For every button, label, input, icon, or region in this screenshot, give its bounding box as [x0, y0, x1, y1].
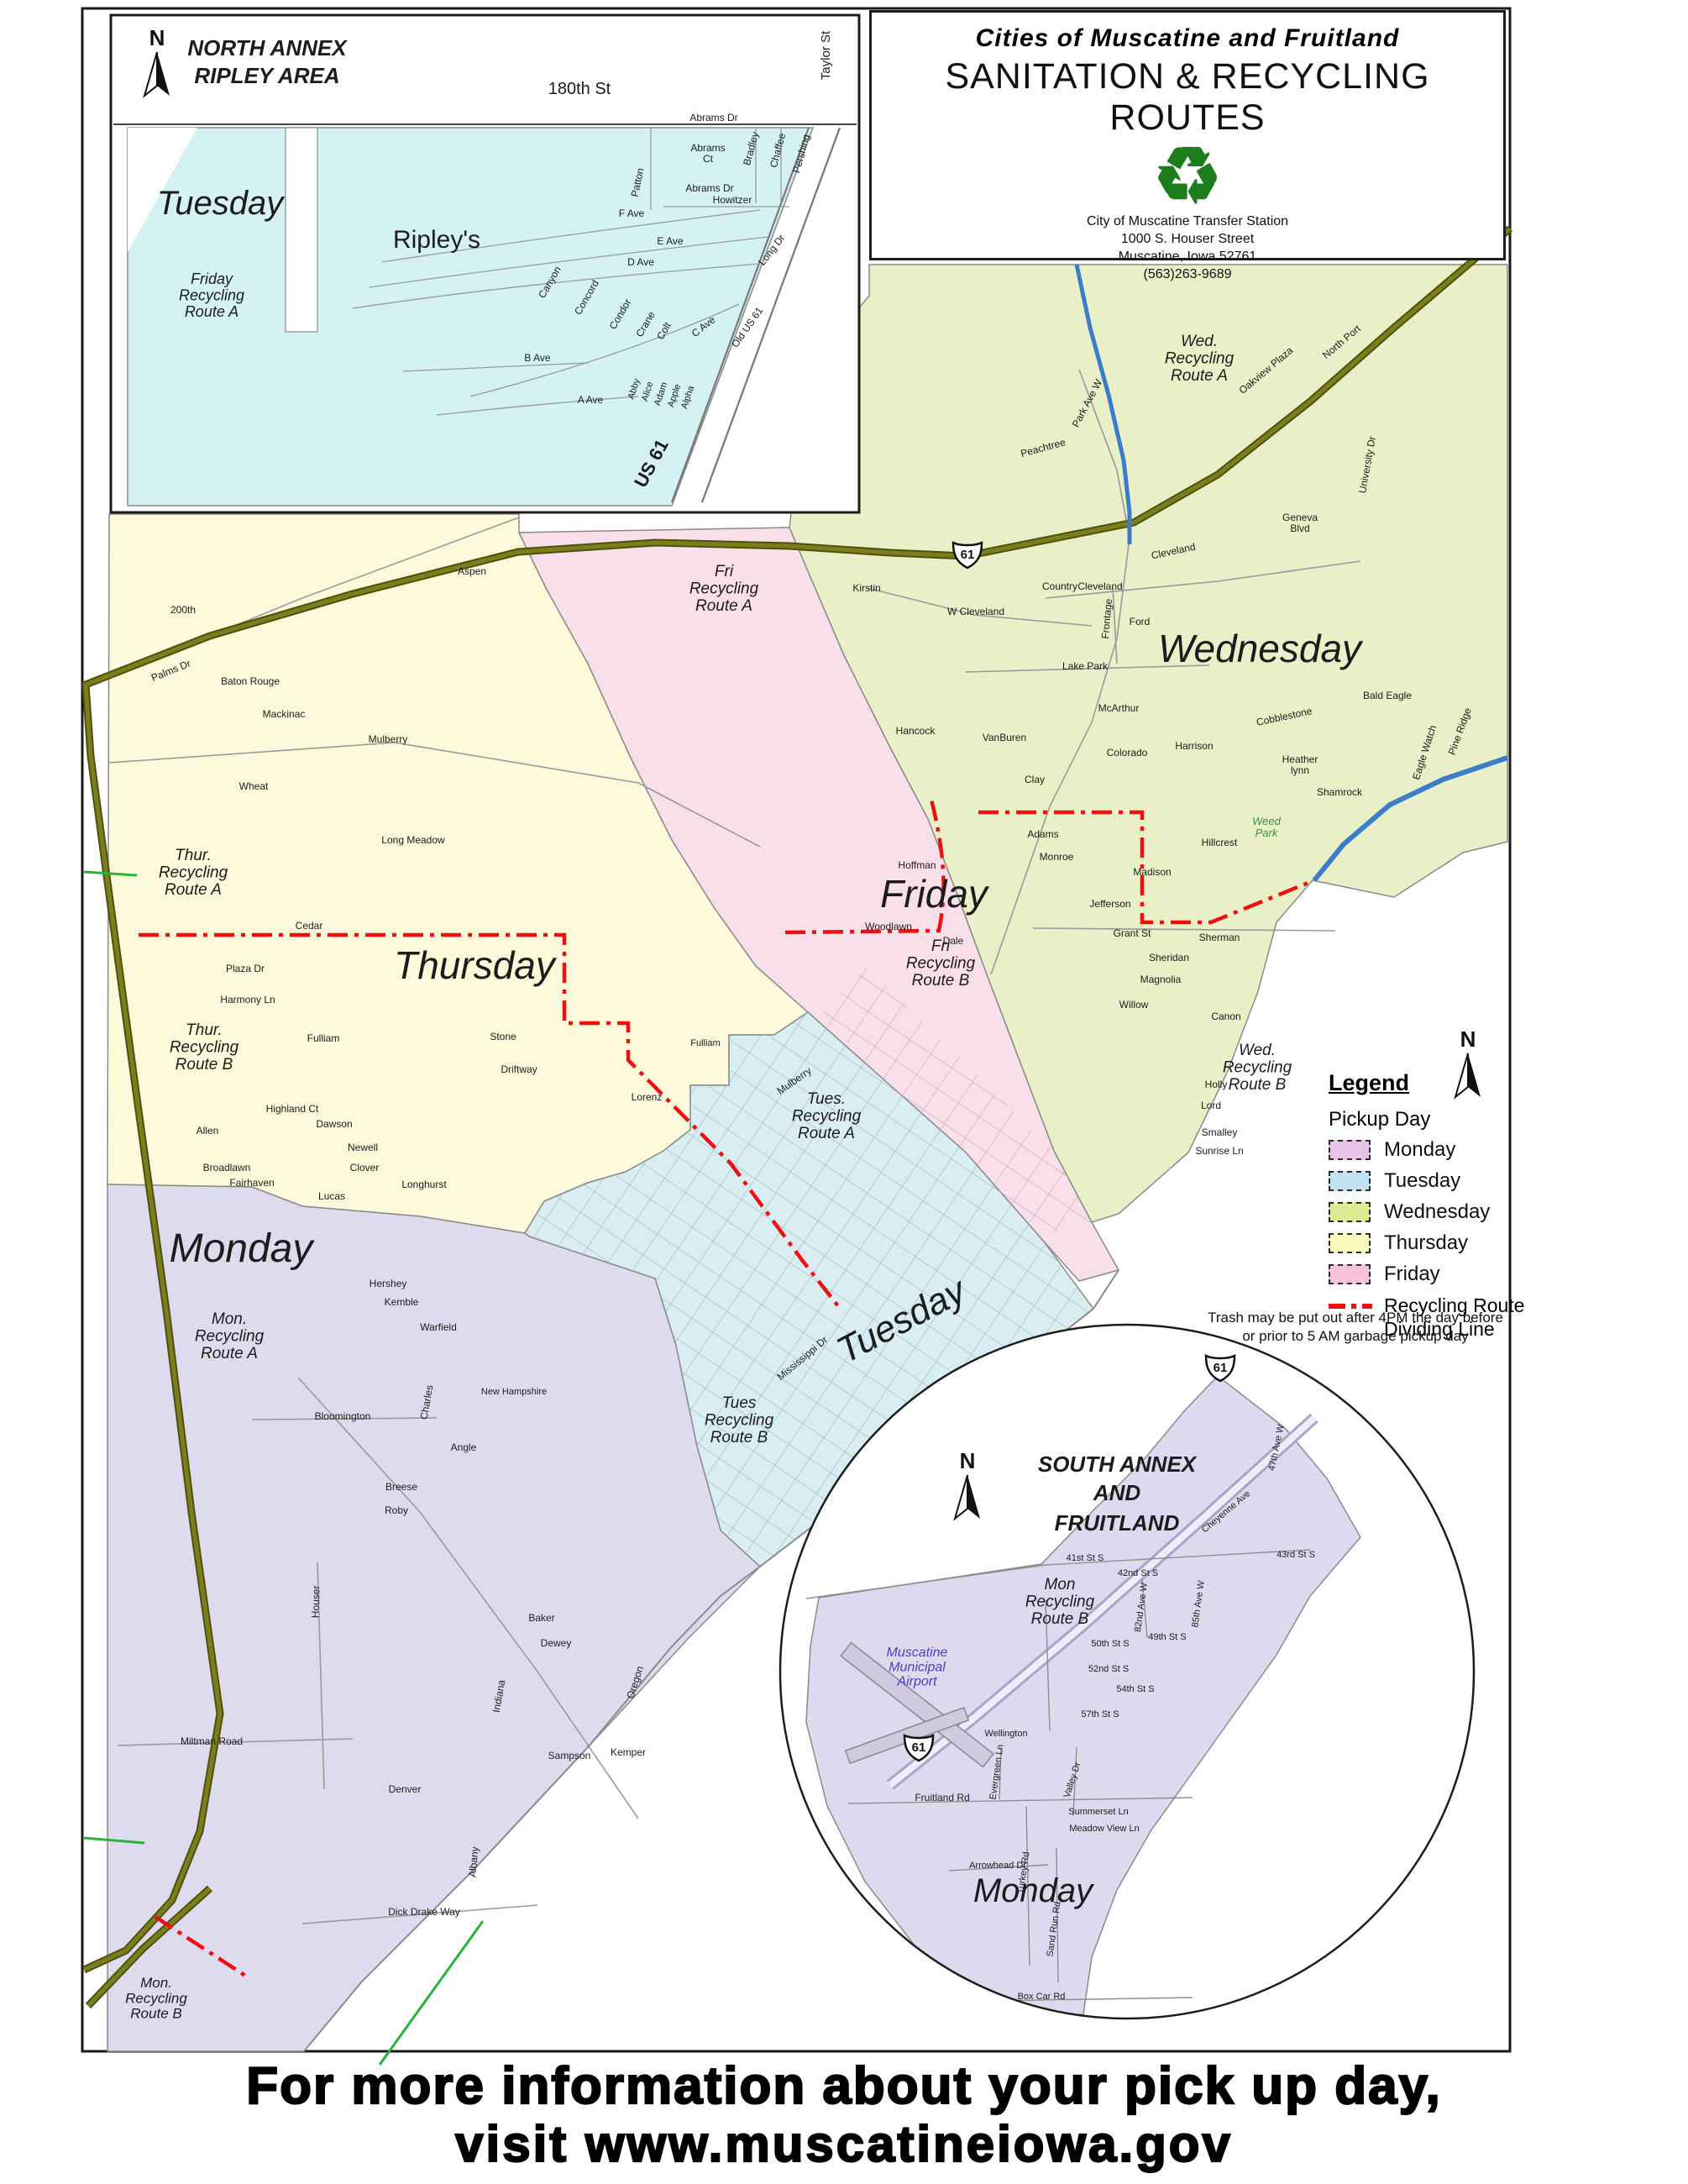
- park-label-weed-park: WeedPark: [1252, 815, 1281, 839]
- street-label: Roby: [385, 1504, 408, 1516]
- transfer-station-address: 1000 S. Houser Street: [872, 230, 1503, 248]
- street-label: Bald Eagle: [1363, 690, 1412, 701]
- street-label: Baker: [528, 1612, 554, 1624]
- legend-item-friday: Friday: [1329, 1263, 1539, 1286]
- street-label: 52nd St S: [1088, 1664, 1129, 1674]
- street-label: Ford: [1130, 616, 1151, 627]
- street-label: Aspen: [458, 565, 486, 577]
- street-label: Monroe: [1040, 851, 1074, 863]
- region-label-monday: Monday: [170, 1226, 316, 1271]
- street-label: Lucas: [318, 1190, 345, 1202]
- street-label: Plaza Dr: [226, 963, 265, 974]
- street-label: Jefferson: [1089, 898, 1130, 910]
- trash-note: Trash may be put out after 4PM the day b…: [1199, 1309, 1512, 1346]
- street-label: Hillcrest: [1202, 837, 1238, 848]
- trash-note-line2: or prior to 5 AM garbage pickup day: [1199, 1327, 1512, 1346]
- inset-north-annex-title: NORTH ANNEX: [187, 35, 348, 60]
- street-label: Fruitland Rd: [915, 1792, 969, 1803]
- street-label: 43rd St S: [1276, 1550, 1315, 1560]
- footer-info-line1: For more information about your pick up …: [0, 2056, 1688, 2116]
- street-label: Howitzer: [713, 194, 752, 206]
- north-arrow-letter: N: [149, 25, 165, 50]
- street-label: Angle: [451, 1441, 477, 1453]
- street-label: Hoffman: [898, 859, 936, 871]
- street-label: 41st St S: [1067, 1553, 1104, 1563]
- street-label: Kemper: [611, 1746, 646, 1758]
- legend-item-wednesday: Wednesday: [1329, 1200, 1539, 1224]
- legend-item-thursday: Thursday: [1329, 1231, 1539, 1255]
- street-label: Mulberry: [369, 733, 408, 745]
- region-label-wednesday: Wednesday: [1158, 627, 1364, 670]
- street-label: Broadlawn: [203, 1162, 251, 1173]
- street-label: Warfield: [420, 1321, 457, 1333]
- street-label: Woodlawn: [865, 921, 912, 932]
- trash-note-line1: Trash may be put out after 4PM the day b…: [1199, 1309, 1512, 1327]
- page-title: SANITATION & RECYCLING ROUTES: [872, 56, 1503, 139]
- street-label: Smalley: [1202, 1126, 1238, 1138]
- north-arrow-letter: N: [1460, 1026, 1476, 1052]
- street-label: Kirstin: [852, 582, 880, 594]
- street-label: Wheat: [239, 780, 269, 792]
- street-label: Baton Rouge: [221, 675, 280, 687]
- street-label: Kemble: [385, 1296, 419, 1308]
- transfer-station-city: Muscatine, Iowa 52761: [872, 248, 1503, 265]
- street-label: Highland Ct: [266, 1103, 319, 1115]
- street-taylor-st: Taylor St: [819, 30, 833, 80]
- street-label: Houser: [309, 1585, 322, 1618]
- street-label: Shamrock: [1317, 786, 1363, 798]
- legend-item-tuesday: Tuesday: [1329, 1169, 1539, 1193]
- street-label: Miltman Road: [181, 1735, 243, 1747]
- street-label: Sheridan: [1149, 952, 1189, 963]
- legend-title: Legend: [1329, 1070, 1539, 1096]
- footer-info-line2: visit www.muscatineiowa.gov: [0, 2115, 1688, 2173]
- shield-number: 61: [912, 1740, 926, 1755]
- street-label: Clover: [350, 1162, 380, 1173]
- street-label: Abrams Dr: [689, 112, 737, 123]
- street-label: Lake Park: [1062, 660, 1109, 672]
- legend-label: Friday: [1384, 1263, 1440, 1286]
- label-ripleys: Ripley's: [393, 226, 480, 254]
- legend-label: Tuesday: [1384, 1169, 1460, 1193]
- street-label: Allen: [197, 1125, 219, 1137]
- street-label: Fairhaven: [229, 1177, 274, 1189]
- street-label: Fulliam: [690, 1038, 720, 1048]
- street-label: Denver: [389, 1783, 422, 1795]
- street-label: Newell: [348, 1142, 378, 1153]
- region-label-friday: Friday: [880, 872, 990, 916]
- legend-label: Monday: [1384, 1138, 1455, 1162]
- street-label: Bloomington: [315, 1410, 371, 1422]
- street-label: Hershey: [370, 1278, 407, 1289]
- street-label: Dawson: [316, 1118, 352, 1130]
- street-label: Mackinac: [263, 708, 306, 720]
- street-label: Grant St: [1114, 927, 1151, 939]
- north-arrow-letter: N: [960, 1448, 976, 1473]
- map-page: 616161 NNN NORTH ANNEXRIPLEY AREA180th S…: [0, 0, 1688, 2184]
- inset-south-annex-title: SOUTH ANNEX: [1038, 1452, 1198, 1477]
- street-label: Cedar: [296, 920, 323, 932]
- legend-swatch-monday: [1329, 1140, 1371, 1160]
- shield-number: 61: [961, 548, 975, 562]
- street-label: Cleveland: [1077, 580, 1122, 592]
- street-label: A Ave: [578, 394, 604, 406]
- street-label: Harmony Ln: [220, 994, 275, 1005]
- street-label: Stone: [490, 1031, 516, 1042]
- inset-north-annex-title2: RIPLEY AREA: [194, 63, 339, 88]
- region-label-annex-tuesday: Tuesday: [157, 185, 286, 222]
- street-label: Box Car Rd: [1018, 1992, 1066, 2002]
- transfer-station-name: City of Muscatine Transfer Station: [872, 213, 1503, 230]
- street-label: Holly: [1205, 1079, 1228, 1090]
- street-label: Driftway: [501, 1063, 537, 1075]
- street-label: Long Meadow: [381, 834, 445, 846]
- street-label: Fulliam: [307, 1032, 340, 1044]
- inset-south-annex-title2: AND: [1093, 1480, 1141, 1505]
- street-label: Canon: [1211, 1011, 1240, 1022]
- legend-items: MondayTuesdayWednesdayThursdayFriday: [1329, 1138, 1539, 1286]
- street-label: Breese: [385, 1481, 417, 1493]
- street-label: D Ave: [627, 256, 654, 268]
- street-label: E Ave: [657, 235, 683, 247]
- legend-label: Wednesday: [1384, 1200, 1490, 1224]
- legend-swatch-thursday: [1329, 1233, 1371, 1253]
- north-annex-inset: [111, 15, 859, 512]
- street-label: 50th St S: [1091, 1639, 1129, 1649]
- street-label: Lord: [1201, 1100, 1221, 1111]
- street-label: 200th: [170, 604, 196, 616]
- street-label: 54th St S: [1116, 1684, 1154, 1694]
- street-label: W Cleveland: [947, 606, 1004, 617]
- street-label: Wellington: [984, 1729, 1027, 1739]
- transfer-station-phone: (563)263-9689: [872, 265, 1503, 283]
- street-label: Longhurst: [401, 1179, 447, 1190]
- title-city-line: Cities of Muscatine and Fruitland: [872, 24, 1503, 53]
- inset-south-annex-title3: FRUITLAND: [1055, 1510, 1180, 1536]
- street-label: Adams: [1027, 828, 1058, 840]
- street-label: Meadow View Ln: [1069, 1824, 1140, 1834]
- street-label: Colorado: [1107, 747, 1148, 759]
- region-label-inset-monday: Monday: [973, 1872, 1095, 1909]
- street-label: Dewey: [541, 1637, 572, 1649]
- region-label-thursday: Thursday: [394, 943, 558, 987]
- shield-number: 61: [1214, 1361, 1228, 1375]
- street-label: Summerset Ln: [1068, 1807, 1129, 1817]
- street-label: Abrams Dr: [685, 182, 733, 194]
- street-label: Sherman: [1199, 932, 1240, 943]
- legend-swatch-friday: [1329, 1264, 1371, 1284]
- recycle-icon: ♻: [872, 140, 1503, 213]
- street-label: Madison: [1133, 866, 1171, 878]
- street-label: Dale: [943, 935, 964, 947]
- legend-swatch-wednesday: [1329, 1202, 1371, 1222]
- street-label: Clay: [1025, 774, 1045, 785]
- street-label: F Ave: [619, 207, 645, 219]
- street-label: Sampson: [548, 1750, 591, 1761]
- legend: Legend Pickup Day MondayTuesdayWednesday…: [1329, 1070, 1539, 1341]
- title-block: Cities of Muscatine and Fruitland SANITA…: [869, 10, 1506, 260]
- legend-label: Thursday: [1384, 1231, 1468, 1255]
- street-label: Sunrise Ln: [1195, 1145, 1243, 1157]
- street-label: McArthur: [1098, 702, 1140, 714]
- street-label: B Ave: [524, 352, 550, 364]
- street-label: Magnolia: [1140, 974, 1182, 985]
- street-label: Hancock: [896, 725, 936, 737]
- legend-item-monday: Monday: [1329, 1138, 1539, 1162]
- legend-subtitle: Pickup Day: [1329, 1108, 1539, 1131]
- street-label: Dick Drake Way: [388, 1906, 460, 1918]
- street-label: VanBuren: [983, 732, 1026, 743]
- street-label: New Hampshire: [481, 1387, 547, 1397]
- street-label: 42nd St S: [1118, 1568, 1158, 1578]
- street-label: 49th St S: [1148, 1632, 1186, 1642]
- street-label: Willow: [1119, 999, 1149, 1011]
- street-label: Lorenz: [632, 1091, 663, 1103]
- street-label: 57th St S: [1081, 1709, 1119, 1719]
- street-label: Country: [1042, 580, 1077, 592]
- street-label: Harrison: [1175, 740, 1213, 752]
- street-180th-st: 180th St: [548, 80, 611, 98]
- legend-swatch-tuesday: [1329, 1171, 1371, 1191]
- street-label: Arrowhead Dr: [969, 1861, 1026, 1871]
